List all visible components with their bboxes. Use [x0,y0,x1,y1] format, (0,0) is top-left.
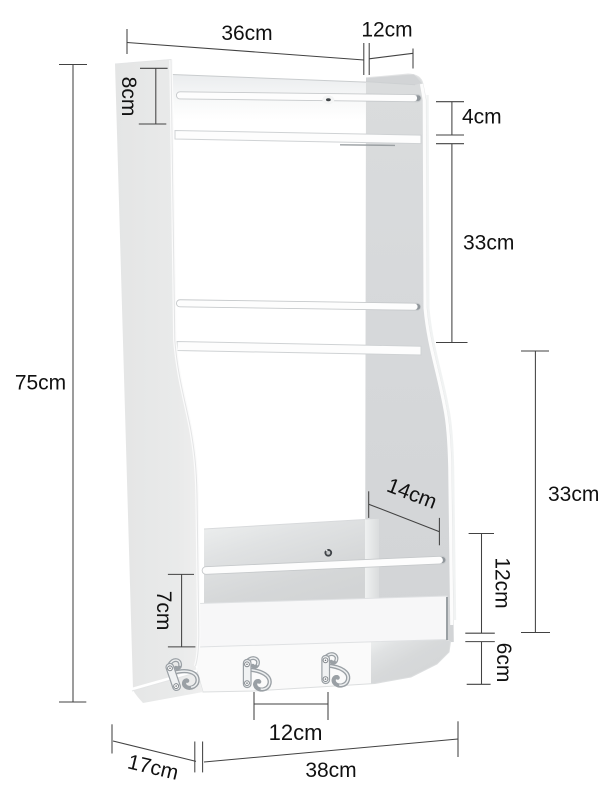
svg-text:12cm: 12cm [269,720,323,745]
svg-text:8cm: 8cm [117,77,140,117]
svg-text:36cm: 36cm [221,22,272,45]
svg-text:12cm: 12cm [361,19,412,42]
svg-text:7cm: 7cm [152,591,175,631]
svg-text:38cm: 38cm [305,759,356,782]
svg-text:33cm: 33cm [548,483,599,506]
svg-text:6cm: 6cm [492,643,515,683]
svg-text:75cm: 75cm [15,372,66,395]
svg-text:33cm: 33cm [463,232,514,255]
svg-text:12cm: 12cm [491,557,514,608]
svg-text:4cm: 4cm [462,106,502,129]
